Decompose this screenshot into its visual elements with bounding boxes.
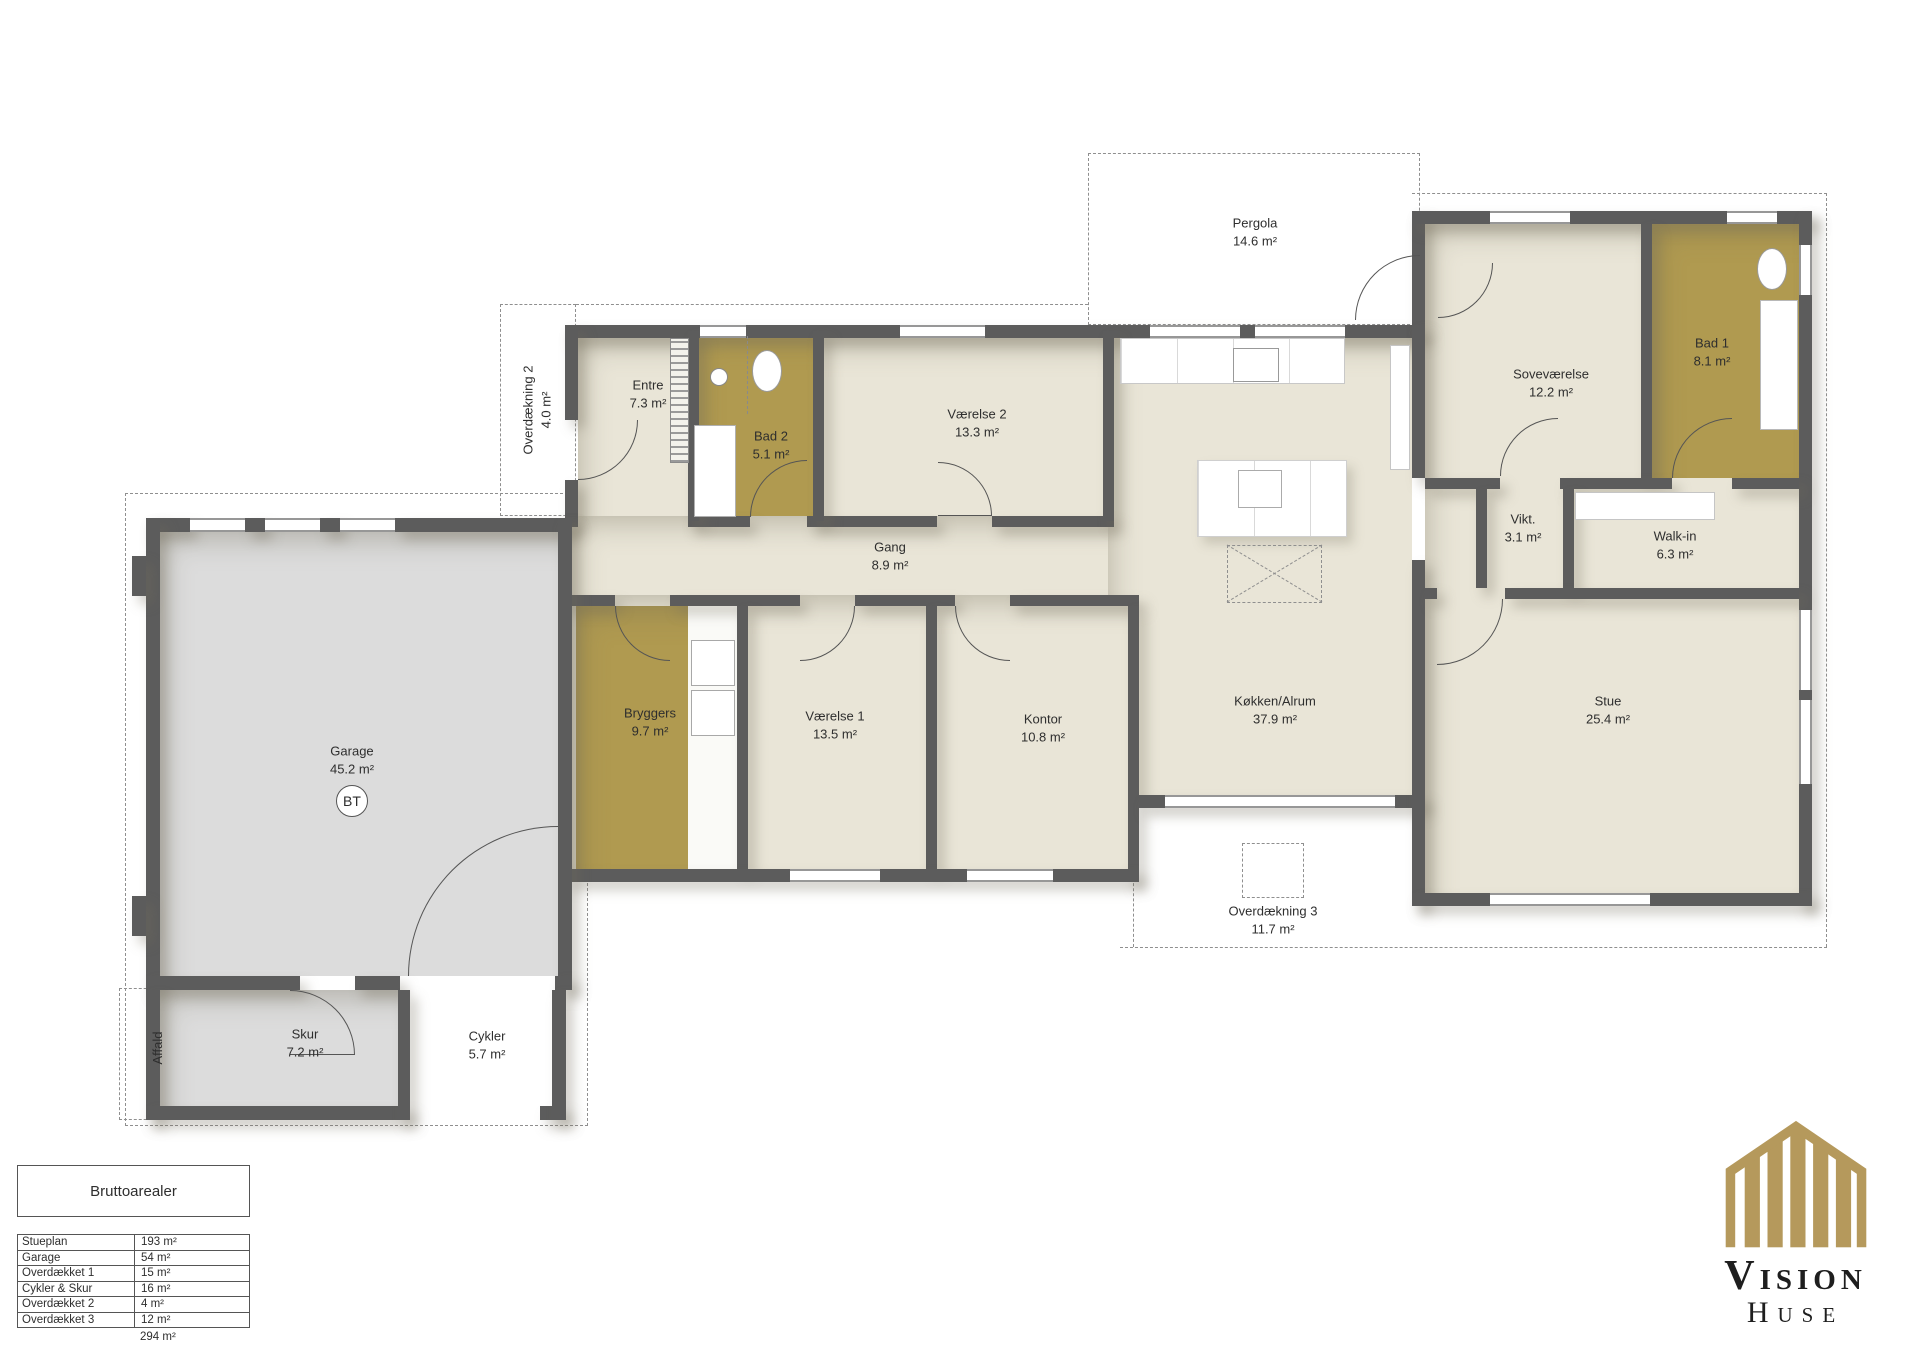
window — [1799, 700, 1812, 784]
window — [1799, 610, 1812, 690]
window — [1490, 893, 1650, 906]
wall-segment — [565, 595, 615, 606]
room-label-pergola: Pergola14.6 m² — [1233, 214, 1278, 249]
island-sink-icon — [1238, 470, 1282, 508]
window — [900, 325, 985, 338]
sink-vanity — [694, 425, 736, 517]
wall-segment — [395, 518, 572, 532]
dryer-icon — [691, 690, 735, 736]
table-row: Overdækket 3 12 m² — [18, 1313, 249, 1329]
garage-window — [190, 518, 245, 532]
room-label-affald: Affald — [149, 1031, 167, 1064]
lamp-icon — [710, 368, 728, 386]
closet-hatch — [670, 338, 689, 463]
room-label-cykler: Cykler5.7 m² — [469, 1027, 506, 1062]
wall-segment — [1732, 478, 1799, 489]
wall-segment — [146, 1106, 410, 1120]
room-label-entre: Entre7.3 m² — [630, 376, 667, 411]
wall-segment — [1103, 331, 1114, 521]
room-label-kontor: Kontor10.8 m² — [1021, 710, 1065, 745]
window — [790, 869, 880, 882]
row-value: 12 m² — [135, 1313, 249, 1328]
wall-segment — [558, 518, 572, 990]
wardrobe-cabinet — [1575, 492, 1715, 520]
table-row: Overdækket 1 15 m² — [18, 1266, 249, 1282]
room-label-overdaekning2: Overdækning 24.0 m² — [519, 366, 554, 455]
sink-vanity — [1760, 300, 1798, 430]
row-label: Overdækket 2 — [18, 1297, 135, 1312]
garage-window — [340, 518, 395, 532]
wall-segment — [555, 976, 572, 990]
wall-segment — [1425, 478, 1500, 489]
wall-segment — [146, 976, 300, 990]
wall-segment — [132, 896, 146, 936]
row-label: Garage — [18, 1251, 135, 1266]
wall-segment — [807, 516, 937, 527]
wall-segment — [355, 976, 400, 990]
window — [1799, 245, 1812, 295]
wall-segment — [245, 518, 265, 532]
wall-segment — [737, 606, 748, 869]
row-value: 16 m² — [135, 1282, 249, 1297]
room-label-skur: Skur7.2 m² — [287, 1025, 324, 1060]
tall-cabinet — [1390, 345, 1410, 470]
room-label-sovevaerelse: Soveværelse12.2 m² — [1513, 365, 1589, 400]
wall-segment — [1128, 606, 1139, 882]
wall-segment — [926, 606, 937, 869]
wall-segment — [1425, 588, 1437, 599]
floor-gang — [572, 516, 1108, 606]
table-row: Overdækket 2 4 m² — [18, 1297, 249, 1313]
room-label-vikt: Vikt.3.1 m² — [1505, 510, 1542, 545]
areas-table-total: 294 m² — [140, 1331, 176, 1343]
floor-plan-canvas: Entre7.3 m² Bad 25.1 m² Værelse 213.3 m²… — [0, 0, 1920, 1358]
wall-segment — [1799, 211, 1812, 906]
logo-suffix-text: Huse — [1698, 1297, 1893, 1329]
row-value: 15 m² — [135, 1266, 249, 1281]
bt-badge: BT — [336, 785, 368, 817]
house-logo-icon — [1720, 1120, 1872, 1253]
patio-door-glass — [1165, 795, 1395, 808]
window — [1150, 325, 1240, 338]
room-label-garage: Garage45.2 m² — [330, 742, 374, 777]
room-label-overdaekning3: Overdækning 311.7 m² — [1229, 902, 1318, 937]
areas-table: Stueplan 193 m² Garage 54 m² Overdækket … — [17, 1234, 250, 1328]
window — [700, 325, 746, 338]
wall-segment — [320, 518, 340, 532]
garage-window — [265, 518, 320, 532]
window — [1255, 325, 1345, 338]
wall-segment — [670, 595, 800, 606]
toilet-icon — [1757, 248, 1787, 290]
window — [967, 869, 1053, 882]
room-label-bad1: Bad 18.1 m² — [1694, 334, 1731, 369]
wall-segment — [1412, 325, 1425, 478]
wall-segment — [1560, 478, 1672, 489]
washer-icon — [691, 640, 735, 686]
table-row: Cykler & Skur 16 m² — [18, 1282, 249, 1298]
room-label-bryggers: Bryggers9.7 m² — [624, 704, 676, 739]
wall-segment — [398, 990, 410, 1120]
room-label-bad2: Bad 25.1 m² — [753, 427, 790, 462]
cooktop-icon — [1233, 348, 1279, 382]
room-label-vaerelse1: Værelse 113.5 m² — [805, 707, 864, 742]
outdoor-table-dashed — [1242, 843, 1304, 898]
toilet-icon — [752, 350, 782, 392]
wall-segment — [855, 595, 955, 606]
wall-segment — [992, 516, 1114, 527]
wall-segment — [565, 325, 578, 420]
table-row: Stueplan 193 m² — [18, 1235, 249, 1251]
wall-segment — [552, 990, 566, 1120]
row-label: Stueplan — [18, 1235, 135, 1250]
wall-segment — [146, 518, 160, 990]
room-label-gang: Gang8.9 m² — [872, 538, 909, 573]
floor-skur — [160, 990, 398, 1106]
wall-segment — [1505, 588, 1799, 599]
wall-segment — [1563, 489, 1574, 588]
row-label: Overdækket 3 — [18, 1313, 135, 1328]
wall-segment — [813, 331, 824, 521]
wall-segment — [1641, 224, 1652, 478]
floor-entrance-strip — [578, 338, 1103, 516]
north-roof-outline-dashed — [576, 304, 1088, 305]
room-label-vaerelse2: Værelse 213.3 m² — [947, 405, 1006, 440]
wall-segment — [1412, 560, 1425, 906]
room-label-walkin: Walk-in6.3 m² — [1654, 527, 1697, 562]
wall-segment — [1010, 595, 1139, 606]
row-label: Overdækket 1 — [18, 1266, 135, 1281]
window — [1727, 211, 1777, 224]
vision-huse-logo: Vision Huse — [1698, 1120, 1893, 1329]
window — [1490, 211, 1570, 224]
wall-segment — [1476, 489, 1487, 588]
south-roof-outline-dashed — [1120, 947, 1827, 948]
logo-brand-text: Vision — [1698, 1255, 1893, 1297]
row-value: 54 m² — [135, 1251, 249, 1266]
wall-segment — [132, 556, 146, 596]
room-label-stue: Stue25.4 m² — [1586, 692, 1630, 727]
row-value: 193 m² — [135, 1235, 249, 1250]
row-label: Cykler & Skur — [18, 1282, 135, 1297]
row-value: 4 m² — [135, 1297, 249, 1312]
room-label-koekken: Køkken/Alrum37.9 m² — [1234, 692, 1316, 727]
table-row: Garage 54 m² — [18, 1251, 249, 1267]
shower-divider-dashed — [747, 336, 748, 414]
areas-table-title: Bruttoarealer — [17, 1165, 250, 1217]
